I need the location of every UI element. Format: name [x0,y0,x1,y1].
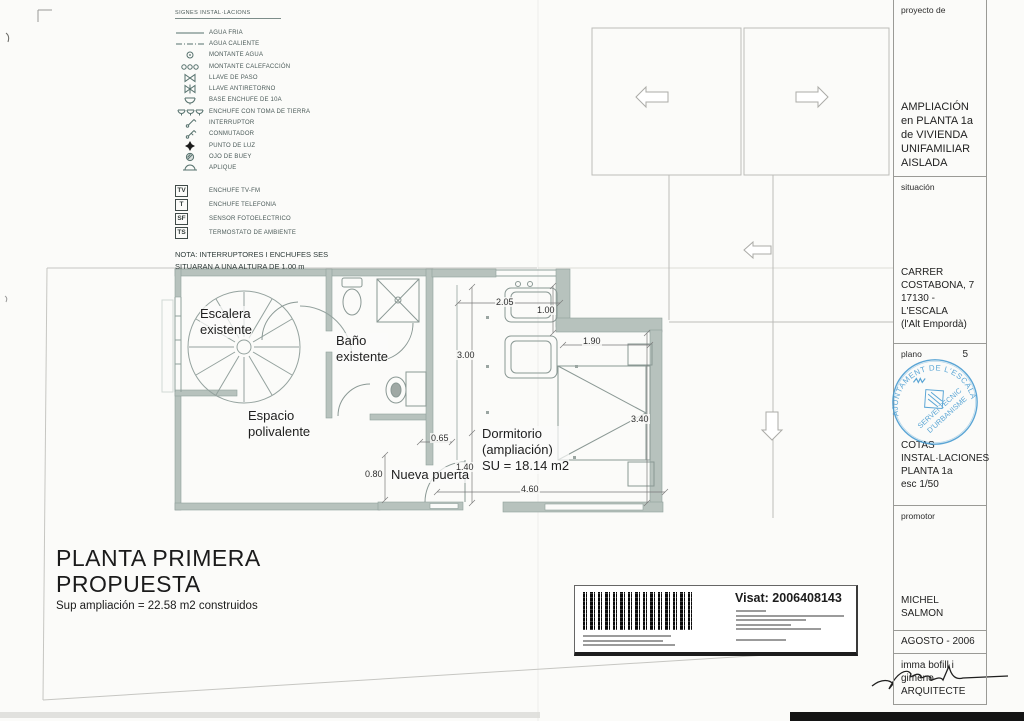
microtext-line [736,624,791,626]
llave-antiretorno-icon [175,84,209,94]
arrow-down-icon [762,412,782,440]
toilet-bowl [343,289,361,315]
legend-row: LLAVE ANTIRETORNO [175,83,345,94]
microtext-line [583,635,671,637]
date-text: AGOSTO - 2006 [901,635,982,648]
arrow-right-icon [796,87,828,107]
legend-note: NOTA: INTERRUPTORES I ENCHUFES SES SITUA… [175,249,345,273]
dim-0-80: 0.80 [364,469,384,479]
punto-de-luz-icon [175,141,209,151]
scan-artifacts [5,33,9,302]
legend-row: MONTANTE AGUA [175,50,345,61]
montante-calefaccion-icon [175,62,209,72]
architect-title: ARQUITECTE [901,685,982,698]
legend-row: PUNTO DE LUZ [175,140,345,151]
architect-name: imma bofill i gimeno [901,659,982,685]
legend-row: APLIQUE [175,163,345,174]
dim-1-40: 1.40 [455,462,475,472]
scanned-sheet: SIGNES INSTAL·LACIONS AGUA FRIA AGUA CAL… [0,0,1024,721]
bath-door-arc [338,384,370,416]
pdf417-barcode [583,592,693,630]
sheet-title: PLANTA PRIMERA PROPUESTA Sup ampliación … [56,545,261,612]
location-text: CARRER COSTABONA, 7 17130 - L'ESCALA (l'… [901,266,982,331]
basin-inner [391,383,401,397]
legend-row: INTERRUPTOR [175,117,345,128]
llave-de-paso-icon [175,73,209,83]
dim-3-00: 3.00 [456,350,476,360]
dim-0-65: 0.65 [430,433,450,443]
room-label-dormitorio: Dormitorio (ampliación) SU = 18.14 m2 [482,426,569,474]
tv-socket-icon: TV [175,185,188,197]
montante-agua-icon [175,50,209,60]
legend-row: SF SENSOR FOTOELECTRICO [175,212,345,226]
legend-row: TV ENCHUFE TV-FM [175,184,345,198]
microtext-line [583,640,663,642]
microtext-line [736,639,786,641]
aplique-icon [175,163,209,173]
legend-row: ENCHUFE CON TOMA DE TIERRA [175,106,345,117]
agua-fria-line-icon [175,28,209,38]
bed [558,366,650,460]
toilet-tank [342,278,362,287]
corner-mark [38,10,52,22]
arrow-left-icon [636,87,668,107]
interruptor-icon [175,118,209,128]
location-label: situación [901,182,982,192]
existing-roof-outline [592,28,893,518]
agua-caliente-line-icon [175,39,209,49]
direction-arrows [636,87,828,440]
legend-row: CONMUTADOR [175,129,345,140]
scan-edge-shadow [0,712,540,718]
microtext-line [583,644,675,646]
page-title-line1: PLANTA PRIMERA [56,545,261,571]
microtext-line [736,610,766,612]
dim-2-05: 2.05 [495,297,515,307]
arrow-left-small-icon [744,242,771,258]
ojo-de-buey-icon [175,152,209,162]
visa-box: Visat: 2006408143 [574,585,858,656]
conmutador-icon [175,129,209,139]
phone-socket-icon: T [175,199,188,211]
dim-1-00: 1.00 [536,305,556,315]
title-block-promoter: promotor MICHEL SALMON [894,505,986,630]
microtext-line [736,619,806,621]
room-label-espacio: Espacio polivalente [248,408,310,440]
legend: SIGNES INSTAL·LACIONS AGUA FRIA AGUA CAL… [175,10,345,273]
scan-edge-bar [790,712,1024,721]
page-title-line2: PROPUESTA [56,571,261,597]
room-label-bano: Baño existente [336,333,388,365]
room-label-escalera: Escalera existente [200,306,252,338]
legend-row: OJO DE BUEY [175,151,345,162]
plan-line-art [0,0,1024,721]
base-enchufe-icon [175,95,209,105]
dim-3-40: 3.40 [630,414,650,424]
nightstand-top [628,344,652,365]
legend-row: MONTANTE CALEFACCIÓN [175,61,345,72]
dim-4-60: 4.60 [520,484,540,494]
ajuntament-stamp: AJUNTAMENT DE L'ESCALA SERVEI TÈCNIC D'U… [886,353,984,451]
project-name: AMPLIACIÓN en PLANTA 1a de VIVIENDA UNIF… [901,100,982,170]
legend-row: AGUA CALIENTE [175,38,345,49]
dim-1-90: 1.90 [582,336,602,346]
title-block-date: AGOSTO - 2006 [894,630,986,653]
legend-title: SIGNES INSTAL·LACIONS [175,10,281,19]
photo-sensor-icon: SF [175,213,188,225]
legend-row: T ENCHUFE TELEFONIA [175,198,345,212]
thermostat-icon: TS [175,227,188,239]
promoter-name: MICHEL SALMON [901,594,982,620]
project-label: proyecto de [901,5,982,15]
title-block-location: situación CARRER COSTABONA, 7 17130 - L'… [894,176,986,343]
visa-number: Visat: 2006408143 [735,591,842,605]
microtext-line [736,628,821,630]
title-block-project: proyecto de AMPLIACIÓN en PLANTA 1a de V… [894,0,986,176]
microtext-line [736,615,844,617]
legend-row: AGUA FRIA [175,27,345,38]
vanity [406,372,426,406]
enchufe-toma-tierra-icon [175,107,209,117]
page-subtitle: Sup ampliación = 22.58 m2 construidos [56,600,261,612]
promoter-label: promotor [901,511,982,521]
legend-row: TS TERMOSTATO DE AMBIENTE [175,226,345,240]
legend-row: BASE ENCHUFE DE 10A [175,95,345,106]
title-block-architect: imma bofill i gimeno ARQUITECTE [894,653,986,704]
legend-row: LLAVE DE PASO [175,72,345,83]
